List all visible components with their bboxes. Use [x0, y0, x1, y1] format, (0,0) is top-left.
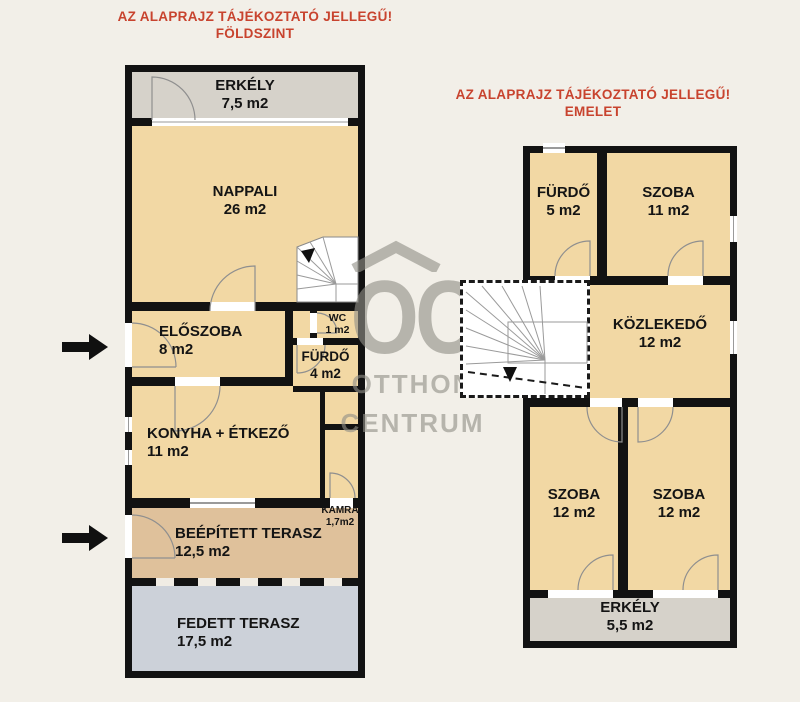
arrow-body: [62, 533, 89, 543]
terrace-arrow-icon: [62, 525, 108, 551]
label-fedett-terasz: FEDETT TERASZ17,5 m2: [177, 615, 300, 651]
stairwell-upper: [460, 280, 590, 398]
door-gap-konyha: [175, 377, 220, 386]
label-furdo-ground: FÜRDŐ4 m2: [293, 348, 358, 382]
door-gap-entrance: [125, 323, 132, 367]
label-szoba-12-left: SZOBA12 m2: [530, 486, 618, 522]
door-gap-erkely-right: [653, 590, 718, 598]
arrow-body: [62, 342, 89, 352]
window-konyha-left-2: [125, 450, 132, 465]
label-nappali: NAPPALI26 m2: [132, 183, 358, 219]
wall-under-furdo: [293, 386, 320, 392]
arrow-head: [89, 525, 108, 551]
door-gap-wc: [310, 313, 317, 333]
window-erkely-nappali: [152, 118, 348, 126]
floor-plan-canvas: AZ ALAPRAJZ TÁJÉKOZTATÓ JELLEGŰ! FÖLDSZI…: [0, 0, 800, 702]
floor-name-ground: FÖLDSZINT: [100, 25, 410, 42]
door-gap-nappali: [210, 302, 255, 311]
room-storage-nook: [325, 392, 358, 424]
door-gap-terasz: [125, 515, 132, 558]
disclaimer-text-upper: AZ ALAPRAJZ TÁJÉKOZTATÓ JELLEGŰ!: [438, 86, 748, 103]
label-furdo-upper: FÜRDŐ5 m2: [530, 184, 597, 220]
window-szoba-11-right: [730, 216, 737, 242]
label-erkely-ground: ERKÉLY7,5 m2: [132, 77, 358, 113]
window-konyha-terasz: [190, 498, 255, 508]
window-furdo-top: [543, 143, 565, 153]
ground-floor-title: AZ ALAPRAJZ TÁJÉKOZTATÓ JELLEGŰ! FÖLDSZI…: [100, 8, 410, 42]
label-konyha: KONYHA + ÉTKEZŐ11 m2: [147, 425, 289, 461]
upper-floor-title: AZ ALAPRAJZ TÁJÉKOZTATÓ JELLEGŰ! EMELET: [438, 86, 748, 120]
window-kozlekedo-right: [730, 321, 737, 354]
door-gap-szoba-left: [590, 398, 622, 407]
label-kamra: KAMRA1,7m2: [319, 505, 361, 529]
label-eloszoba: ELŐSZOBA8 m2: [159, 323, 242, 359]
label-szoba-11: SZOBA11 m2: [607, 184, 730, 220]
entrance-arrow-icon: [62, 334, 108, 360]
floor-name-upper: EMELET: [438, 103, 748, 120]
door-gap-szoba-right: [638, 398, 673, 407]
label-szoba-12-right: SZOBA12 m2: [628, 486, 730, 522]
door-gap-erkely-left: [548, 590, 613, 598]
label-erkely-upper: ERKÉLY5,5 m2: [530, 599, 730, 635]
door-gap-szoba-11: [668, 276, 703, 285]
label-wc: WC1 m2: [317, 312, 358, 336]
arrow-head: [89, 334, 108, 360]
open-wall-dashed: [132, 578, 358, 586]
label-kozlekedo: KÖZLEKEDŐ12 m2: [590, 316, 730, 352]
room-kamra: [325, 430, 358, 498]
window-konyha-left-1: [125, 417, 132, 432]
label-beepitett-terasz: BEÉPÍTETT TERASZ12,5 m2: [175, 525, 322, 561]
room-vestibule: [293, 311, 310, 338]
upper-floor-plan: FÜRDŐ5 m2 SZOBA11 m2 KÖZLEKEDŐ12 m2 SZOB…: [460, 146, 737, 648]
disclaimer-text-ground: AZ ALAPRAJZ TÁJÉKOZTATÓ JELLEGŰ!: [100, 8, 410, 25]
door-gap-furdo: [297, 338, 323, 345]
ground-floor-plan: ERKÉLY7,5 m2 NAPPALI26 m2 ELŐSZOBA8 m2 W…: [125, 65, 365, 678]
